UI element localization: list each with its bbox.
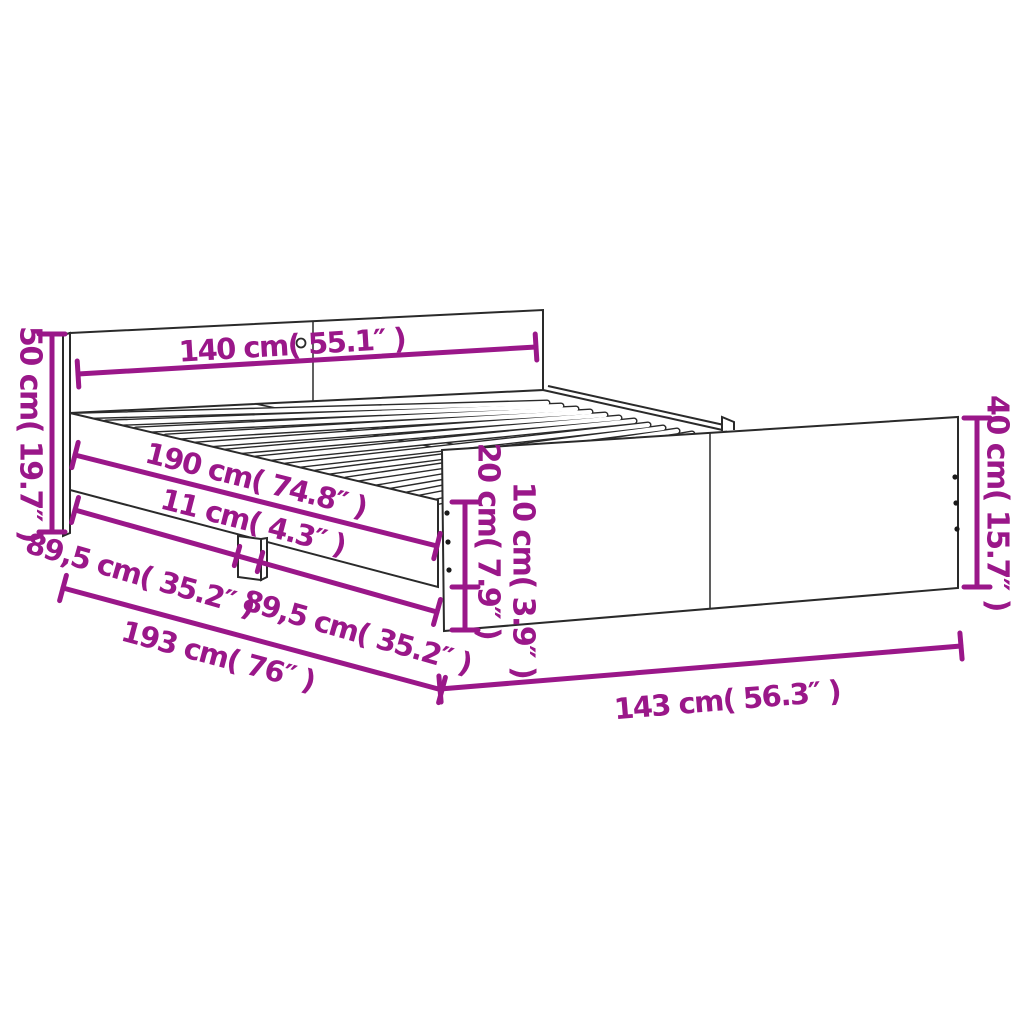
dim-label-headboard-height: 50 cm( 19.7″ ) bbox=[13, 326, 48, 542]
right-rail-end-post bbox=[722, 417, 734, 431]
diagram-canvas: 140 cm( 55.1″ ) 50 cm( 19.7″ ) 190 cm( 7… bbox=[0, 0, 1024, 1024]
dim-label-total-width: 143 cm( 56.3″ ) bbox=[613, 674, 842, 726]
dim-label-footboard-height: 40 cm( 15.7″ ) bbox=[980, 395, 1015, 611]
headboard-side-edge bbox=[63, 333, 70, 536]
dim-label-rail-height: 20 cm( 7.9″ ) bbox=[471, 443, 506, 640]
dim-label-clearance-height: 10 cm( 3.9″ ) bbox=[506, 482, 541, 679]
bed-frame-diagram: 140 cm( 55.1″ ) 50 cm( 19.7″ ) 190 cm( 7… bbox=[0, 0, 1024, 1024]
